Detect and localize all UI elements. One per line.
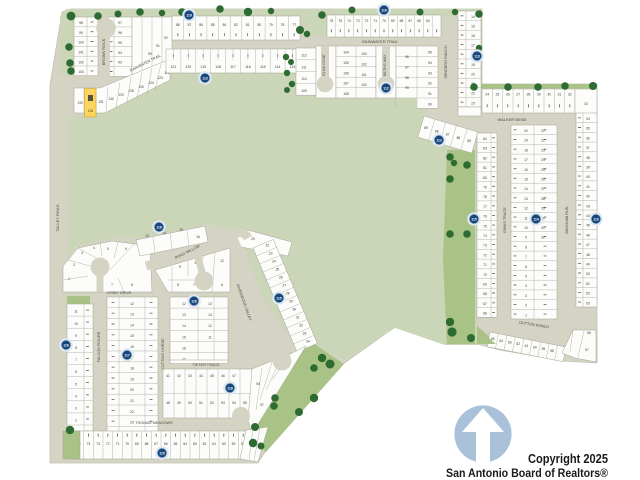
svg-text:19: 19 [524,139,528,143]
svg-text:32: 32 [568,93,572,97]
svg-text:85: 85 [467,139,471,143]
svg-text:12: 12 [524,207,528,211]
svg-text:30: 30 [547,93,551,97]
svg-text:91: 91 [428,92,432,96]
svg-text:13: 13 [208,302,212,306]
svg-text:7: 7 [193,283,195,287]
svg-text:58: 58 [550,349,554,353]
svg-text:7: 7 [75,358,77,362]
svg-text:13: 13 [130,313,134,317]
svg-text:7: 7 [111,283,113,287]
svg-text:59: 59 [232,442,236,446]
svg-text:63: 63 [426,19,430,23]
svg-text:75: 75 [338,19,342,23]
svg-text:27: 27 [541,187,545,191]
svg-text:119: 119 [200,65,206,69]
svg-text:78: 78 [483,195,487,199]
svg-text:130: 130 [108,97,114,101]
svg-text:43: 43 [188,374,192,378]
svg-text:114: 114 [275,65,281,69]
svg-text:20: 20 [524,129,528,133]
svg-text:90: 90 [148,52,152,56]
svg-text:53: 53 [221,401,225,405]
svg-text:14: 14 [130,323,134,327]
svg-text:13: 13 [524,197,528,201]
svg-text:112: 112 [436,138,442,142]
svg-text:126: 126 [138,85,144,89]
svg-text:68: 68 [483,292,487,296]
svg-text:81: 81 [483,166,487,170]
svg-text:79: 79 [483,186,487,190]
svg-text:23: 23 [541,148,545,152]
svg-text:69: 69 [483,283,487,287]
svg-text:63: 63 [508,341,512,345]
svg-text:10: 10 [524,226,528,230]
svg-text:67: 67 [154,442,158,446]
svg-text:TIETER TRACE: TIETER TRACE [192,363,220,367]
svg-text:16: 16 [471,34,475,38]
svg-text:73: 73 [96,442,100,446]
svg-text:95: 95 [118,41,122,45]
svg-text:60: 60 [222,442,226,446]
svg-text:121: 121 [170,65,176,69]
svg-text:96: 96 [405,55,409,59]
svg-text:ELSA COVE: ELSA COVE [322,54,326,76]
svg-text:23: 23 [471,101,475,105]
svg-text:22: 22 [130,410,134,414]
svg-text:1: 1 [525,313,527,317]
svg-text:111: 111 [301,65,306,69]
svg-text:46: 46 [221,374,225,378]
svg-text:69: 69 [391,19,395,23]
svg-text:61: 61 [212,442,216,446]
svg-text:16: 16 [182,346,186,350]
svg-text:87: 87 [446,133,450,137]
svg-text:92: 92 [428,82,432,86]
svg-text:BROWN ROCK: BROWN ROCK [102,38,106,65]
svg-text:28: 28 [527,93,531,97]
svg-text:25: 25 [276,268,280,272]
svg-text:63: 63 [193,442,197,446]
svg-text:82: 82 [483,156,487,160]
svg-text:67: 67 [483,302,487,306]
svg-text:37: 37 [586,146,590,150]
svg-text:17: 17 [524,158,528,162]
svg-text:54: 54 [256,382,260,386]
svg-text:133: 133 [77,101,83,105]
svg-text:102: 102 [361,62,367,66]
svg-text:95: 95 [428,51,432,55]
svg-text:113: 113 [474,54,480,58]
svg-text:35: 35 [586,127,590,131]
svg-text:32: 32 [541,236,545,240]
svg-text:RAINWATER TRAIL: RAINWATER TRAIL [362,39,399,44]
svg-text:118: 118 [215,65,221,69]
svg-text:110: 110 [381,8,387,12]
svg-text:80: 80 [257,23,261,27]
svg-text:23: 23 [269,252,273,256]
svg-text:113: 113 [202,76,208,80]
svg-text:12: 12 [208,324,212,328]
svg-text:47: 47 [586,243,590,247]
svg-text:116: 116 [245,65,251,69]
svg-text:21: 21 [541,129,545,133]
svg-text:5: 5 [75,382,77,386]
svg-text:116: 116 [191,299,197,303]
svg-text:106: 106 [343,71,349,75]
svg-text:31: 31 [541,226,545,230]
svg-text:19: 19 [130,377,134,381]
svg-text:40: 40 [586,175,590,179]
svg-text:26: 26 [279,276,283,280]
svg-text:71: 71 [116,442,120,446]
svg-text:12: 12 [130,302,134,306]
svg-text:34: 34 [306,340,310,344]
svg-text:82: 82 [234,23,238,27]
svg-text:48: 48 [586,253,590,257]
svg-text:26: 26 [506,93,510,97]
svg-text:102: 102 [78,60,84,64]
svg-text:13: 13 [182,313,186,317]
svg-text:108: 108 [343,92,349,96]
svg-text:50: 50 [188,401,192,405]
svg-text:THOMAS MEADOWS: THOMAS MEADOWS [135,421,173,425]
svg-text:72: 72 [483,253,487,257]
svg-text:29: 29 [289,300,293,304]
svg-text:28: 28 [541,197,545,201]
svg-text:San Antonio Board of Realtors®: San Antonio Board of Realtors® [446,466,608,480]
svg-text:88: 88 [176,23,180,27]
svg-text:BETHS WAY: BETHS WAY [383,54,387,76]
svg-text:100: 100 [361,52,367,56]
svg-text:128: 128 [128,89,134,93]
svg-text:89: 89 [424,126,428,130]
svg-text:57: 57 [585,348,589,352]
svg-text:75: 75 [483,224,487,228]
svg-text:6: 6 [75,370,77,374]
svg-text:120: 120 [185,65,191,69]
svg-text:52: 52 [210,401,214,405]
svg-text:76: 76 [483,215,487,219]
svg-text:73: 73 [483,244,487,248]
svg-text:64: 64 [183,442,187,446]
svg-text:101: 101 [78,51,84,55]
svg-text:7: 7 [525,255,527,259]
svg-text:105: 105 [343,61,349,65]
svg-text:11: 11 [74,310,78,314]
svg-text:117: 117 [124,353,130,357]
svg-text:15: 15 [524,178,528,182]
svg-text:57: 57 [260,403,264,407]
svg-text:86: 86 [199,23,203,27]
svg-text:66: 66 [417,19,421,23]
svg-text:2: 2 [525,304,527,308]
svg-text:101: 101 [361,73,367,77]
svg-text:70: 70 [382,19,386,23]
svg-text:114: 114 [533,217,539,221]
svg-text:26: 26 [541,178,545,182]
svg-text:14: 14 [182,324,186,328]
svg-text:132: 132 [88,109,94,113]
svg-text:41: 41 [586,185,590,189]
svg-text:42: 42 [177,374,181,378]
svg-text:18: 18 [524,148,528,152]
svg-text:BINGHAM RUN: BINGHAM RUN [565,206,569,233]
svg-text:TALLEY ROAD: TALLEY ROAD [55,204,60,231]
svg-text:10: 10 [74,322,78,326]
svg-text:72: 72 [106,442,110,446]
svg-text:22: 22 [541,139,545,143]
svg-text:79: 79 [269,23,273,27]
svg-text:80: 80 [483,176,487,180]
svg-text:33: 33 [303,332,307,336]
svg-text:73: 73 [356,19,360,23]
svg-text:9: 9 [525,236,527,240]
svg-text:8: 8 [177,283,179,287]
svg-text:14: 14 [471,15,475,19]
svg-text:98: 98 [405,76,409,80]
svg-text:JOSEF DRIVE: JOSEF DRIVE [107,291,132,295]
svg-text:131: 131 [98,100,104,104]
svg-text:32: 32 [299,324,303,328]
svg-text:112: 112 [301,54,306,58]
svg-text:91: 91 [156,44,160,48]
svg-text:11: 11 [524,216,528,220]
svg-text:69: 69 [135,442,139,446]
svg-text:99: 99 [79,31,83,35]
svg-text:15: 15 [471,25,475,29]
svg-text:46: 46 [586,233,590,237]
svg-text:8: 8 [75,346,77,350]
svg-text:22: 22 [265,244,269,248]
svg-text:8: 8 [131,283,133,287]
svg-text:22: 22 [471,92,475,96]
svg-text:8: 8 [525,245,527,249]
svg-text:109: 109 [301,89,307,93]
svg-text:45: 45 [210,374,214,378]
svg-text:70: 70 [125,442,129,446]
svg-text:116: 116 [63,343,69,347]
svg-text:24: 24 [272,260,276,264]
svg-text:2: 2 [75,419,77,423]
svg-text:119: 119 [186,13,192,17]
svg-text:49: 49 [586,263,590,267]
svg-text:30: 30 [292,308,296,312]
svg-text:3: 3 [81,251,83,255]
svg-text:43: 43 [586,204,590,208]
svg-text:115: 115 [260,65,266,69]
svg-text:97: 97 [118,21,122,25]
svg-text:25: 25 [496,93,500,97]
svg-text:15: 15 [179,228,183,232]
svg-text:50: 50 [586,272,590,276]
svg-text:64: 64 [499,339,503,343]
svg-text:41: 41 [166,374,170,378]
svg-text:48: 48 [166,401,170,405]
svg-text:28: 28 [286,292,290,296]
svg-text:4: 4 [93,246,95,250]
svg-text:4: 4 [75,394,77,398]
svg-text:90: 90 [428,103,432,107]
svg-text:71: 71 [483,263,487,267]
svg-text:68: 68 [400,19,404,23]
svg-text:SENDERO RANCH: SENDERO RANCH [444,45,448,79]
svg-text:117: 117 [230,65,236,69]
svg-text:72: 72 [365,19,369,23]
svg-text:11: 11 [208,335,212,339]
svg-text:55: 55 [243,401,247,405]
svg-text:118: 118 [227,386,233,390]
svg-text:74: 74 [483,234,487,238]
svg-text:33: 33 [584,102,588,106]
svg-text:31: 31 [296,316,300,320]
svg-text:3: 3 [75,407,77,411]
svg-text:66: 66 [483,312,487,316]
svg-text:92: 92 [164,36,168,40]
svg-text:86: 86 [457,136,461,140]
svg-text:47: 47 [232,374,236,378]
svg-text:51: 51 [199,401,203,405]
svg-text:94: 94 [428,61,432,65]
svg-text:68: 68 [145,442,149,446]
svg-text:29: 29 [537,93,541,97]
svg-text:ENNIS TRACE: ENNIS TRACE [503,207,507,233]
svg-text:93: 93 [118,61,122,65]
svg-text:76: 76 [330,19,334,23]
svg-text:25: 25 [541,168,545,172]
svg-text:44: 44 [199,374,203,378]
svg-text:110: 110 [593,217,599,221]
svg-text:118: 118 [156,225,162,229]
svg-text:2: 2 [73,263,75,267]
svg-text:31: 31 [558,93,562,97]
svg-text:61: 61 [525,344,529,348]
svg-text:3: 3 [525,294,527,298]
svg-text:70: 70 [483,273,487,277]
svg-text:13: 13 [145,234,149,238]
svg-text:38: 38 [586,156,590,160]
svg-text:83: 83 [483,147,487,151]
svg-text:6: 6 [221,283,223,287]
svg-text:78: 78 [281,23,285,27]
svg-text:56: 56 [587,331,591,335]
svg-text:9: 9 [75,334,77,338]
svg-text:98: 98 [79,21,83,25]
svg-text:124: 124 [148,81,154,85]
svg-text:113: 113 [290,65,296,69]
svg-text:15: 15 [130,334,134,338]
svg-text:129: 129 [118,93,124,97]
svg-text:67: 67 [408,19,412,23]
svg-text:12: 12 [182,302,186,306]
svg-text:6: 6 [125,247,127,251]
svg-text:110: 110 [301,77,306,81]
svg-text:115: 115 [159,451,165,455]
svg-text:20: 20 [251,237,255,241]
svg-text:81: 81 [246,23,250,27]
svg-text:5: 5 [525,275,527,279]
svg-text:54: 54 [232,401,236,405]
svg-text:84: 84 [223,23,227,27]
svg-text:21: 21 [130,399,134,403]
svg-text:12: 12 [220,259,224,263]
svg-text:51: 51 [586,282,590,286]
svg-text:WALKER BEND: WALKER BEND [498,117,527,122]
svg-text:74: 74 [347,19,351,23]
svg-text:115: 115 [471,217,477,221]
svg-text:94: 94 [118,51,122,55]
svg-text:4: 4 [525,284,527,288]
svg-text:16: 16 [196,235,200,239]
svg-text:9: 9 [179,265,181,269]
svg-text:96: 96 [118,31,122,35]
svg-text:14: 14 [208,313,212,317]
svg-text:100: 100 [78,41,84,45]
svg-text:53: 53 [586,301,590,305]
svg-text:104: 104 [343,51,349,55]
svg-text:62: 62 [203,442,207,446]
svg-text:16: 16 [130,345,134,349]
svg-text:77: 77 [483,205,487,209]
svg-text:20: 20 [471,73,475,77]
svg-text:65: 65 [174,442,178,446]
svg-text:93: 93 [428,71,432,75]
svg-text:123: 123 [157,76,163,80]
svg-text:FALCON FIGURE: FALCON FIGURE [97,331,101,362]
svg-text:84: 84 [483,137,487,141]
svg-text:16: 16 [524,168,528,172]
svg-text:103: 103 [78,70,84,74]
svg-text:34: 34 [586,117,590,121]
svg-text:77: 77 [292,23,296,27]
svg-text:29: 29 [541,207,545,211]
svg-text:97: 97 [405,65,409,69]
svg-text:115: 115 [276,296,282,300]
svg-text:27: 27 [282,284,286,288]
svg-text:39: 39 [586,166,590,170]
svg-text:74: 74 [87,442,91,446]
svg-text:62: 62 [516,342,520,346]
svg-text:71: 71 [373,19,377,23]
svg-text:100: 100 [361,83,367,87]
svg-text:88: 88 [435,129,439,133]
svg-text:1: 1 [68,277,70,281]
svg-text:24: 24 [541,158,545,162]
svg-text:17: 17 [471,44,475,48]
svg-text:112: 112 [383,86,389,90]
svg-text:59: 59 [542,347,546,351]
svg-text:14: 14 [524,187,528,191]
svg-text:52: 52 [586,292,590,296]
svg-text:87: 87 [188,23,192,27]
svg-text:18: 18 [130,367,134,371]
svg-text:6: 6 [525,265,527,269]
svg-text:49: 49 [177,401,181,405]
svg-text:15: 15 [182,335,186,339]
svg-text:45: 45 [586,224,590,228]
svg-text:107: 107 [343,82,349,86]
svg-text:99: 99 [405,86,409,90]
svg-text:27: 27 [516,93,520,97]
svg-text:42: 42 [586,195,590,199]
svg-text:5: 5 [107,247,109,251]
svg-text:85: 85 [211,23,215,27]
svg-text:60: 60 [533,346,537,350]
svg-text:CUTTING HORSE: CUTTING HORSE [161,338,165,370]
svg-text:24: 24 [485,93,489,97]
svg-text:19: 19 [471,63,475,67]
svg-text:Copyright 2025: Copyright 2025 [528,452,608,466]
